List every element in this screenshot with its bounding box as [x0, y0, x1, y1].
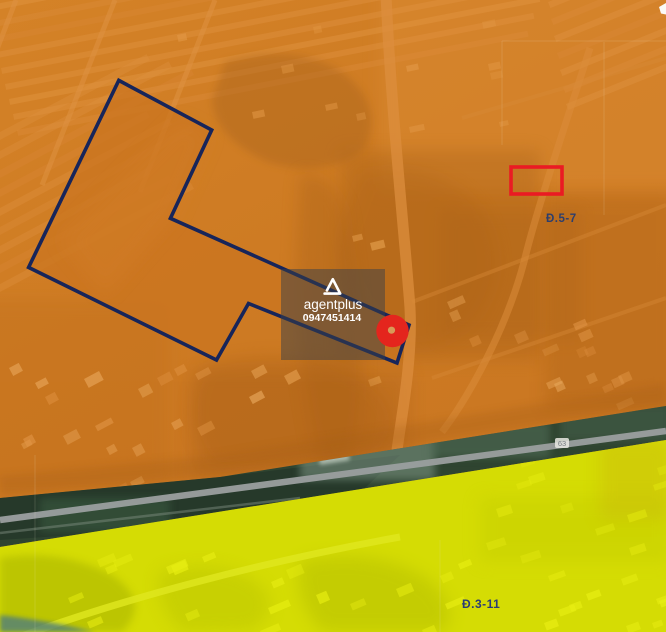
svg-text:63: 63	[558, 439, 566, 448]
svg-text:Đ.3-11: Đ.3-11	[462, 597, 500, 611]
svg-text:0947451414: 0947451414	[303, 312, 362, 324]
svg-text:agentplus: agentplus	[304, 297, 363, 312]
svg-text:Đ.5-7: Đ.5-7	[546, 213, 577, 225]
